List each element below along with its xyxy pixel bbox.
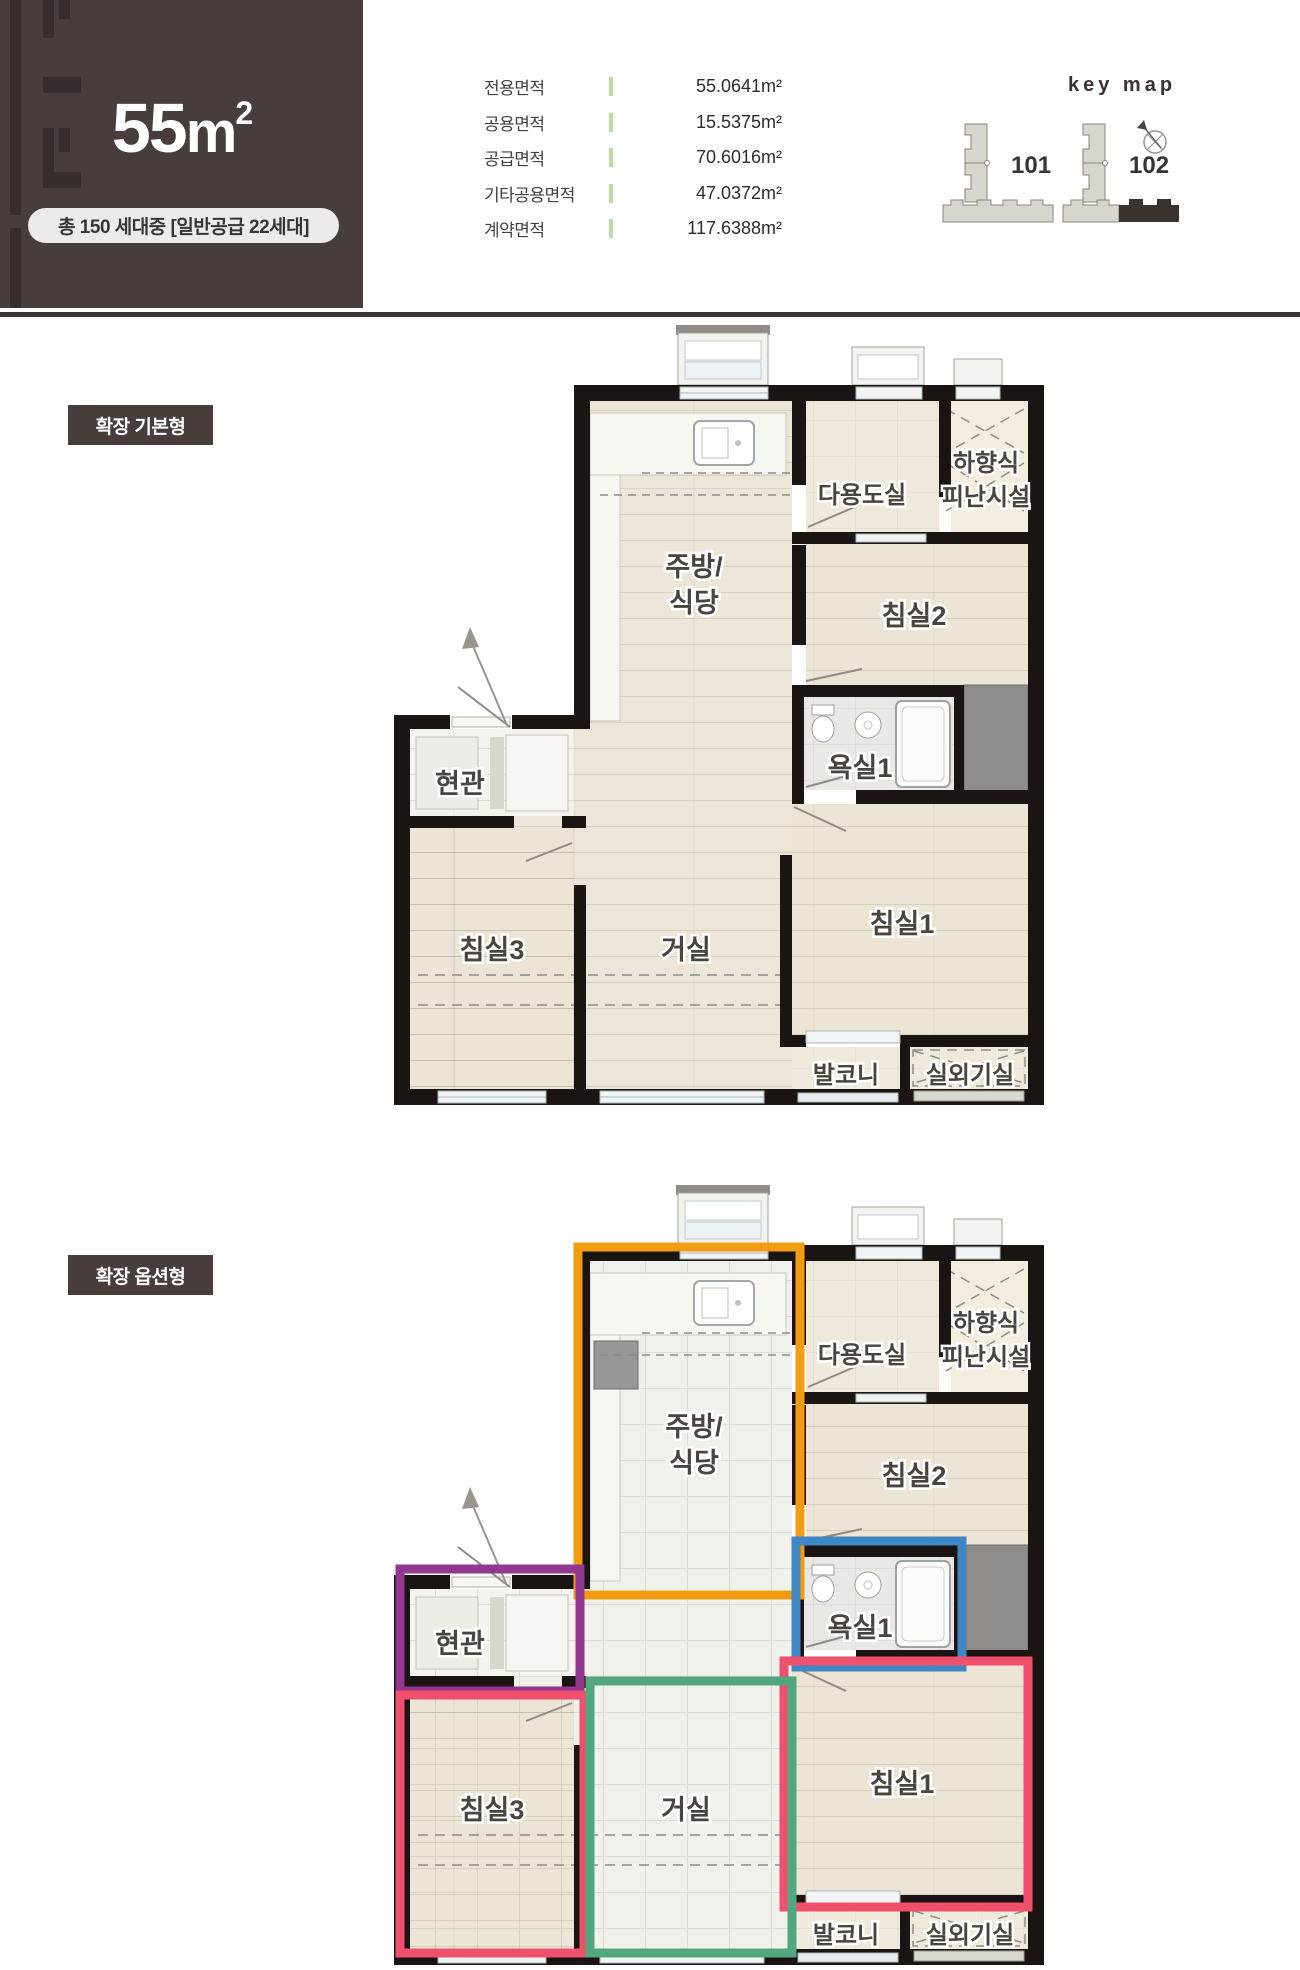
row-divider xyxy=(609,148,613,167)
compass-icon xyxy=(1137,120,1166,153)
unit-size-title: 55m2 xyxy=(0,88,363,168)
keymap: 101 102 xyxy=(941,116,1191,228)
row-divider xyxy=(609,219,613,238)
area-label: 기타공용면적 xyxy=(484,181,609,206)
table-row: 공급면적 70.6016m² xyxy=(484,140,782,176)
keymap-title: key map xyxy=(1068,74,1176,97)
supply-badge: 총 150 세대중 [일반공급 22세대] xyxy=(28,208,339,243)
area-label: 공급면적 xyxy=(484,145,609,170)
keymap-row-102 xyxy=(1063,200,1119,222)
area-value: 117.6388m² xyxy=(621,218,782,239)
floorplan-basic xyxy=(394,321,1044,1105)
floorplan-option xyxy=(394,1181,1044,1965)
keymap-row-101 xyxy=(943,200,1053,222)
page: 55m2 총 150 세대중 [일반공급 22세대] 전용면적 55.0641m… xyxy=(0,0,1300,1970)
table-row: 계약면적 117.6388m² xyxy=(484,211,782,247)
table-row: 공용면적 15.5375m² xyxy=(484,105,782,141)
section-tag-option: 확장 옵션형 xyxy=(68,1255,213,1295)
table-row: 전용면적 55.0641m² xyxy=(484,69,782,105)
row-divider xyxy=(609,113,613,132)
row-divider xyxy=(609,184,613,203)
area-table: 전용면적 55.0641m² 공용면적 15.5375m² 공급면적 70.60… xyxy=(484,69,782,247)
keymap-label-102: 102 xyxy=(1129,152,1169,179)
area-label: 계약면적 xyxy=(484,216,609,241)
area-value: 70.6016m² xyxy=(621,147,782,168)
area-label: 공용면적 xyxy=(484,110,609,135)
area-value: 55.0641m² xyxy=(621,76,782,97)
keymap-label-101: 101 xyxy=(1011,152,1051,179)
unit-title-panel: 55m2 총 150 세대중 [일반공급 22세대] xyxy=(0,0,363,308)
table-row: 기타공용면적 47.0372m² xyxy=(484,176,782,212)
area-value: 47.0372m² xyxy=(621,183,782,204)
area-value: 15.5375m² xyxy=(621,112,782,133)
section-tag-basic: 확장 기본형 xyxy=(68,405,213,445)
row-divider xyxy=(609,77,613,96)
area-label: 전용면적 xyxy=(484,74,609,99)
keymap-highlight-unit xyxy=(1119,199,1179,222)
section-divider xyxy=(0,312,1300,317)
